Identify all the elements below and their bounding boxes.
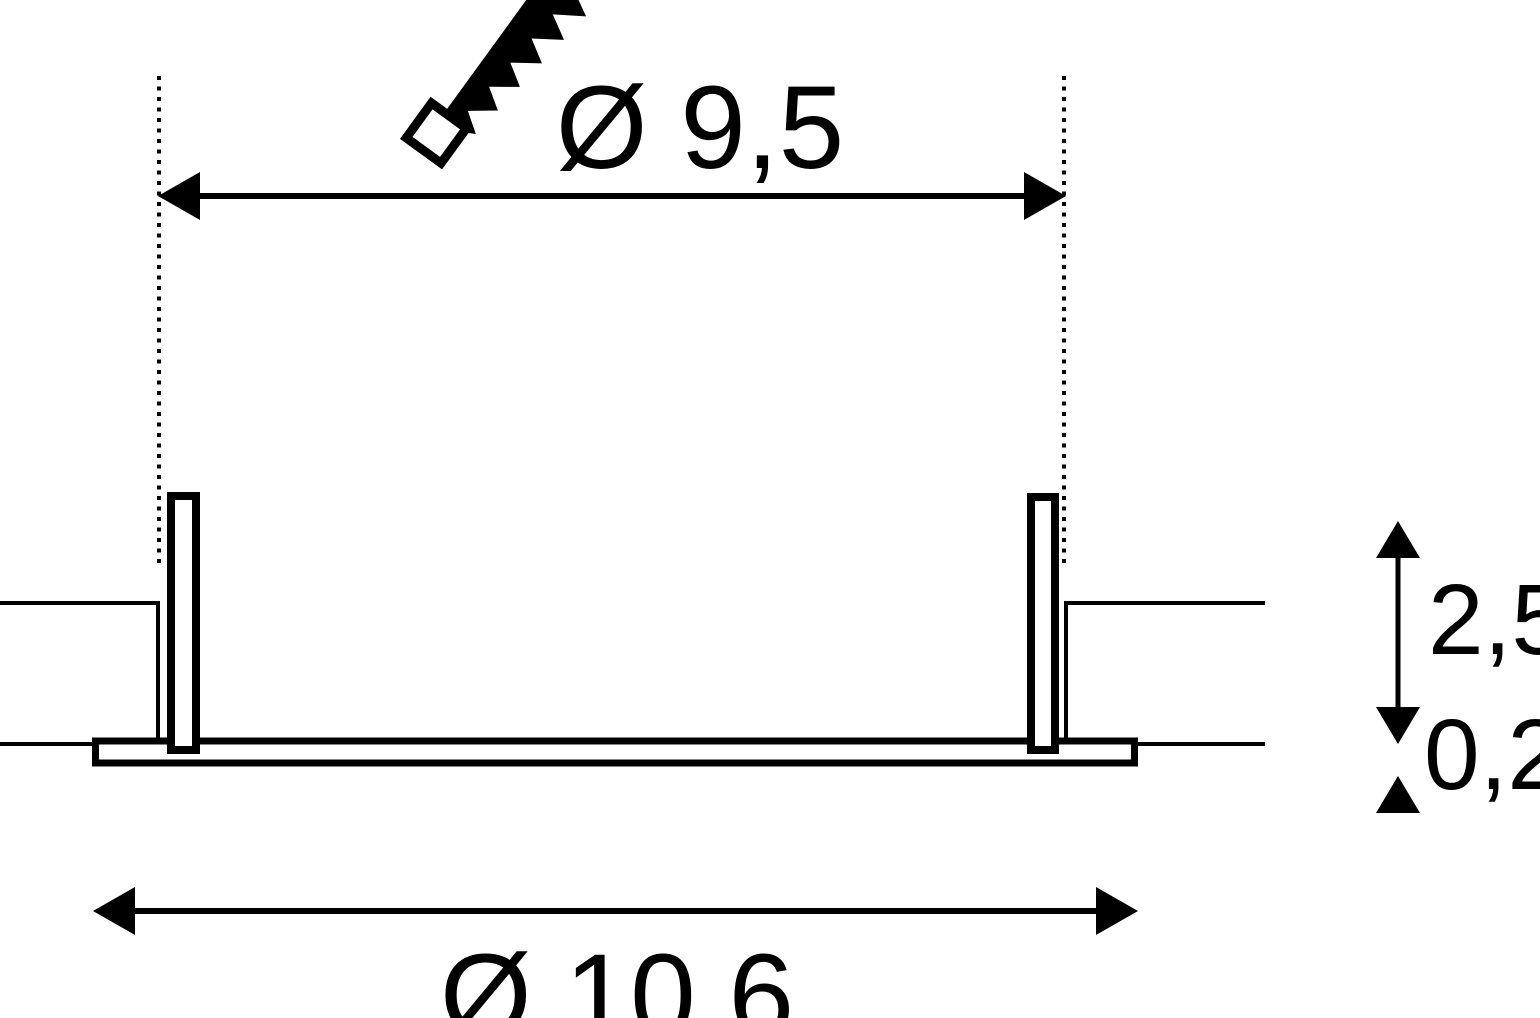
arrowhead-left-icon — [93, 887, 135, 935]
outer-diameter-label: Ø 10,6 — [440, 930, 794, 1018]
cutout-diameter-label: Ø 9,5 — [556, 62, 845, 194]
arrowhead-up-icon — [1376, 521, 1420, 558]
flange-thickness-label: 0,2 — [1424, 699, 1540, 811]
dimension-drawing: Ø 9,5 Ø 10,6 2,5 0,2 — [0, 0, 1540, 1018]
mounting-clip-left — [171, 496, 196, 750]
arrowhead-right-icon — [1096, 887, 1138, 935]
arrowhead-down-icon — [1376, 707, 1420, 744]
recess-height-label: 2,5 — [1428, 564, 1540, 676]
arrowhead-up-icon — [1376, 776, 1420, 813]
arrowhead-left-icon — [158, 172, 200, 220]
luminaire-section — [96, 496, 1135, 763]
outer-diameter-dimension: Ø 10,6 — [93, 887, 1138, 1018]
luminaire-flange — [96, 741, 1135, 763]
technical-drawing: Ø 9,5 Ø 10,6 2,5 0,2 — [0, 0, 1540, 1018]
cutout-diameter-dimension: Ø 9,5 — [158, 62, 1066, 567]
arrowhead-right-icon — [1024, 172, 1066, 220]
mounting-clip-right — [1031, 497, 1055, 750]
